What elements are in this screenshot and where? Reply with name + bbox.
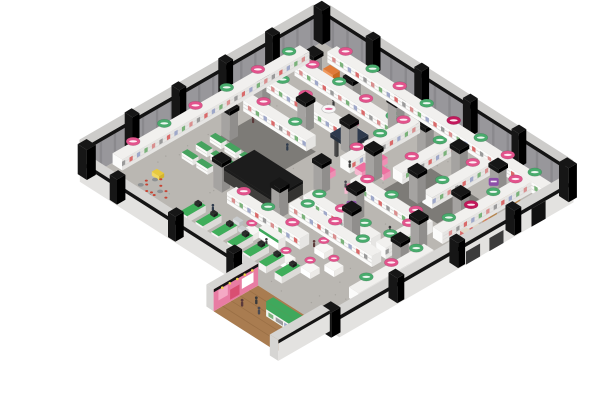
floor-speckle (345, 299, 346, 300)
person-body (349, 163, 351, 168)
aisle-sign-text (369, 68, 377, 70)
promo-sign-text (307, 259, 313, 261)
person (313, 240, 316, 247)
floor-speckle (157, 161, 158, 162)
spotlight (244, 273, 247, 276)
aisle-sign-text (423, 102, 431, 104)
wall-streak (310, 19, 312, 47)
aisle-sign-text (291, 121, 299, 123)
cafe-chair (164, 197, 167, 199)
aisle-sign-text (400, 119, 408, 121)
aisle-sign-text (388, 193, 396, 195)
post-face (117, 175, 125, 205)
floor-speckle (281, 290, 282, 291)
aisle-sign-text (362, 97, 370, 99)
aisle-sign-text (362, 276, 370, 278)
post-face (514, 207, 521, 236)
aisle-sign-text (129, 140, 137, 142)
promo-sign-text (249, 222, 255, 224)
post-face (397, 274, 404, 303)
spotlight (236, 278, 239, 281)
floor-speckle (447, 161, 448, 162)
corner-post-top (314, 1, 331, 45)
aisle-sign-text (304, 202, 312, 204)
visitor-head (258, 307, 261, 310)
aisle-sign-text (240, 190, 248, 192)
aisle-sign-text (335, 80, 343, 82)
wall-post (110, 170, 126, 205)
column-sign-text (491, 181, 497, 183)
post-face (470, 98, 478, 136)
floor-speckle (293, 168, 294, 169)
aisle-sign-text (285, 50, 293, 52)
column (312, 153, 332, 194)
aisle-sign-text (288, 221, 296, 223)
person (286, 143, 289, 150)
visitor-body (241, 302, 243, 307)
wall-post (389, 269, 405, 304)
cafe-chair (159, 185, 162, 187)
aisle-sign-text (361, 222, 369, 224)
aisle-sign-text (160, 122, 168, 124)
aisle-sign-text (376, 132, 384, 134)
floor-speckle (276, 105, 277, 106)
visitor-head (241, 299, 244, 302)
aisle-sign-text (504, 154, 512, 156)
floor-speckle (169, 193, 170, 194)
post-face (519, 129, 527, 167)
floor-speckle (319, 295, 320, 296)
floor-speckle (339, 282, 340, 283)
aisle-sign-text (353, 146, 361, 148)
spotlight (221, 286, 224, 289)
wall-post (506, 201, 522, 236)
person-body (313, 243, 315, 248)
cafe-chair (145, 184, 148, 186)
aisle-sign-text (469, 161, 477, 163)
isometric-scene (0, 0, 600, 407)
person-head (313, 240, 316, 243)
floor-speckle (209, 192, 210, 193)
corner-post-left (78, 139, 96, 180)
post-face (569, 164, 577, 203)
post-face (168, 212, 175, 242)
floor-speckle (386, 166, 387, 167)
post-face (314, 6, 323, 45)
floor-speckle (311, 302, 312, 303)
aisle-sign-text (315, 193, 323, 195)
floor-speckle (242, 251, 243, 252)
post-face (78, 144, 87, 180)
floor-speckle (202, 200, 203, 201)
person-head (286, 143, 289, 146)
visitor-body (255, 299, 257, 304)
store-floorplan-render (0, 0, 600, 407)
post-face (322, 6, 330, 45)
aisle-sign-text (467, 204, 475, 206)
aisle-sign-text (512, 178, 520, 180)
spotlight (229, 282, 232, 285)
floor-speckle (350, 268, 351, 269)
aisle-sign-text (489, 191, 497, 193)
aisle-sign-text (438, 179, 446, 181)
promo-sign-text (283, 250, 289, 252)
post-face (87, 145, 96, 180)
aisle-sign-text (342, 50, 350, 52)
table-top (138, 183, 144, 187)
post-face (175, 212, 183, 242)
aisle-sign-text (260, 100, 268, 102)
aisle-sign-text (331, 220, 339, 222)
cafe-chair (153, 194, 156, 196)
promo-sign-text (331, 257, 337, 259)
entrance-left-wall-face (206, 285, 213, 312)
person-body (252, 119, 254, 124)
aisle-sign-text (412, 247, 420, 249)
floor-speckle (179, 154, 180, 155)
corner-post-right (559, 157, 577, 202)
visitor-head (255, 296, 258, 299)
floor-speckle (187, 145, 188, 146)
person-head (212, 204, 215, 207)
aisle-sign-text (359, 238, 367, 240)
promo-sign-text (321, 240, 327, 242)
person-body (286, 146, 288, 151)
person-head (348, 160, 351, 163)
person-head (265, 238, 268, 241)
cafe-chair (150, 191, 153, 193)
aisle-sign-text (450, 119, 458, 121)
floor-speckle (382, 182, 383, 183)
cafe-chair (165, 190, 168, 192)
person-head (344, 181, 347, 184)
table-top (152, 178, 158, 182)
aisle-sign-text (396, 85, 404, 87)
aisle-sign-text (192, 104, 200, 106)
aisle-sign-text (445, 216, 453, 218)
table-top (157, 190, 163, 194)
cafe-chair (145, 180, 148, 182)
person-head (389, 226, 392, 229)
aisle-sign-text (477, 137, 485, 139)
aisle-sign-text (254, 68, 262, 70)
visitor-body (258, 310, 260, 315)
wall-post (168, 207, 184, 242)
floor-speckle (165, 155, 166, 156)
aisle-sign-text (223, 86, 231, 88)
post-face (110, 175, 117, 205)
floor-speckle (271, 281, 272, 282)
aisle-sign-text (264, 206, 272, 208)
aisle-sign-text (363, 178, 371, 180)
floor-speckle (385, 223, 386, 224)
aisle-sign-text (325, 108, 333, 110)
aisle-sign-text (309, 63, 317, 65)
aisle-sign-text (387, 261, 395, 263)
spotlight (251, 269, 254, 272)
cafe-chair (145, 190, 148, 192)
post-face (458, 239, 465, 268)
aisle-sign-text (436, 139, 444, 141)
wall-post (449, 234, 465, 269)
person (348, 160, 351, 167)
wall-streak (332, 20, 334, 49)
column (408, 163, 428, 204)
aisle-sign-text (531, 171, 539, 173)
cafe-chair (159, 178, 162, 180)
aisle-sign-text (408, 155, 416, 157)
aisle-sign-text (386, 232, 394, 234)
floor-speckle (208, 134, 209, 135)
floor-speckle (335, 294, 336, 295)
post-face (559, 162, 569, 202)
floor-speckle (437, 165, 438, 166)
floor-speckle (213, 190, 214, 191)
